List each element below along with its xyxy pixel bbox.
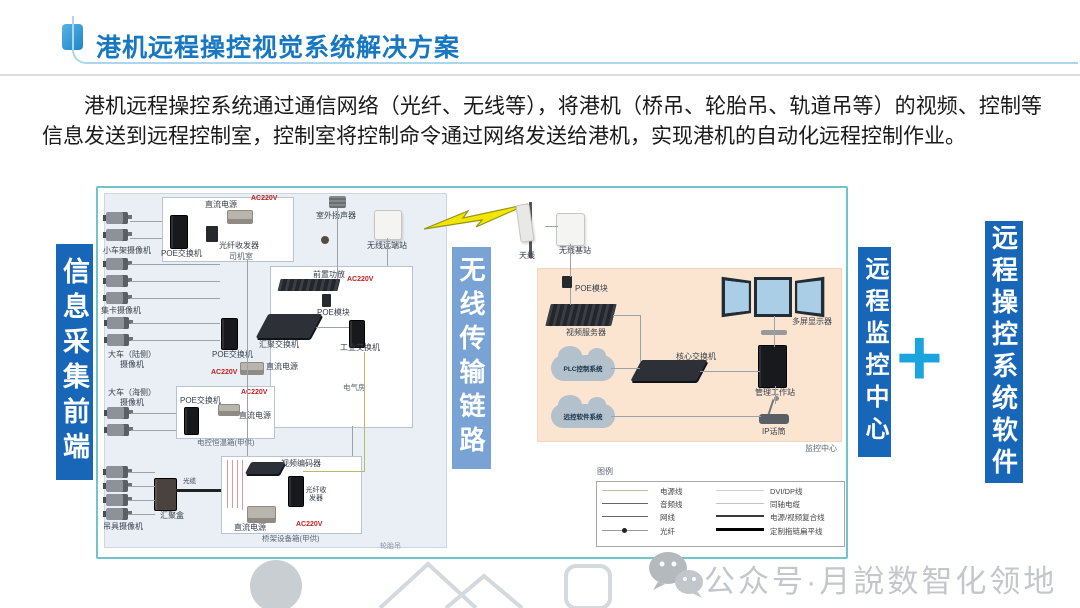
poe-switch-icon	[170, 215, 188, 249]
camera-icon	[106, 292, 128, 304]
gantry-sea-cameras-label: 大车（海侧）摄像机	[106, 388, 158, 407]
banner-monitoring-center: 远程监控中心	[858, 247, 891, 457]
legend-label-fiber: 光纤	[660, 526, 675, 537]
connection-line	[130, 238, 162, 239]
connection-line	[570, 244, 571, 277]
legend-fiber-dot	[622, 528, 627, 533]
legend-line-coax	[716, 503, 764, 504]
wechat-icon	[646, 549, 704, 599]
moon-frame-icon	[566, 566, 610, 608]
legend-label-power: 电源线	[660, 486, 683, 497]
outdoor-speaker-label: 室外扬声器	[316, 211, 356, 221]
pickup-mic-icon	[321, 236, 329, 244]
aggregation-box-label: 汇聚盒	[160, 511, 184, 521]
ac220v-label: AC220V	[211, 369, 237, 376]
mountain-icon	[380, 564, 476, 608]
aggregation-box-icon	[154, 478, 177, 511]
connection-line	[640, 315, 641, 362]
connection-line	[128, 500, 155, 501]
fiber-cable-icon	[176, 489, 221, 492]
legend-label-audio: 音频线	[660, 499, 683, 510]
base-station-label: 无线基站	[559, 246, 591, 256]
legend-line-network	[602, 516, 648, 517]
software-cloud-label: 远控软件系统	[551, 411, 615, 421]
ac220v-label: AC220V	[241, 389, 267, 396]
display-screen	[754, 277, 792, 317]
power-line	[242, 460, 243, 510]
plc-system-cloud-label: PLC控制系统	[551, 363, 615, 373]
core-switch-label: 核心交换机	[676, 352, 716, 362]
camera-icon	[107, 334, 129, 346]
poe-switch-icon	[184, 407, 199, 435]
dc-power-label: 直流电源	[234, 523, 266, 533]
connection-line	[775, 386, 776, 404]
software-cloud: 远控软件系统	[551, 404, 615, 428]
video-server-icon	[545, 304, 616, 326]
outdoor-speaker-icon	[329, 196, 346, 208]
camera-icon	[106, 480, 128, 492]
connection-line	[570, 288, 571, 305]
connection-line	[128, 514, 155, 515]
connection-line	[247, 260, 248, 456]
legend-label-dvi: DVI/DP线	[770, 486, 803, 497]
connection-line	[131, 430, 176, 431]
preamp-icon	[278, 279, 341, 291]
fiber-transceiver-icon	[206, 226, 218, 242]
camera-icon	[106, 212, 128, 224]
dc-power-icon	[218, 404, 240, 416]
connection-line	[128, 472, 155, 473]
dc-power-icon	[247, 506, 276, 523]
connection-line	[131, 323, 220, 324]
camera-icon	[106, 275, 128, 287]
connection-line	[387, 238, 388, 266]
connection-line	[700, 371, 760, 372]
camera-icon	[107, 407, 129, 419]
camera-icon	[106, 494, 128, 506]
elec-control-box-label: 电控恒温箱(甲供)	[197, 438, 255, 447]
fiber-transceiver-icon	[288, 476, 304, 507]
fiber-transceiver-label: 光纤收发器	[219, 241, 259, 251]
connection-line	[130, 281, 220, 282]
truck-cameras-label: 集卡摄像机	[101, 306, 141, 316]
poe-switch-label: POE交换机	[161, 249, 202, 259]
camera-icon	[106, 229, 128, 241]
legend-label-coax: 同轴电缆	[770, 499, 800, 510]
connection-line	[316, 327, 349, 328]
poe-module-label: POE模块	[317, 308, 350, 318]
watermark-text: 公众号·月說数智化领地	[704, 556, 1057, 601]
connection-line	[611, 368, 640, 369]
legend-line-flat-cable	[716, 528, 764, 531]
core-switch-icon	[630, 360, 707, 381]
plus-sign: +	[896, 318, 943, 398]
banner-front-end: 信息采集前端	[56, 244, 93, 480]
connection-line	[611, 416, 761, 417]
fiber-line	[303, 471, 365, 472]
connection-line	[131, 340, 220, 341]
connection-line	[613, 315, 640, 316]
workstation-icon	[758, 345, 787, 388]
connection-line	[130, 264, 220, 265]
connection-line	[130, 298, 220, 299]
dc-power-icon	[227, 210, 253, 224]
aggregation-switch-label: 汇聚交换机	[259, 340, 299, 350]
dc-power-icon	[240, 362, 264, 375]
dc-power-label: 直流电源	[205, 200, 237, 210]
video-server-label: 视频服务器	[566, 328, 606, 338]
header-divider	[0, 74, 1080, 76]
poe-module-icon	[322, 294, 331, 307]
poe-module-icon	[562, 276, 572, 288]
page-title: 港机远程操控视觉系统解决方案	[96, 28, 460, 64]
cab-room-label: 司机室	[229, 252, 253, 262]
video-encoder-label: 视频编码器	[281, 459, 321, 469]
poe-module-label: POE模块	[575, 284, 608, 294]
plc-system-cloud: PLC控制系统	[551, 355, 615, 381]
camera-icon	[106, 508, 128, 520]
multi-display-icon	[722, 274, 826, 318]
ip-mic-label: IP话筒	[762, 427, 786, 437]
legend-label-network: 网线	[660, 512, 675, 523]
power-line	[237, 460, 238, 508]
poe-switch-label: POE交换机	[180, 396, 221, 406]
legend-line-power	[602, 490, 648, 491]
ac220v-label: AC220V	[347, 276, 373, 283]
spreader-cameras-label: 吊具摄像机	[103, 522, 143, 532]
camera-icon	[107, 424, 129, 436]
antenna-label: 天线	[519, 251, 535, 261]
connection-line	[337, 208, 338, 279]
multi-display-label: 多屏显示器	[792, 317, 832, 327]
connection-line	[128, 486, 155, 487]
legend-label-composite: 电源/视频复合线	[770, 512, 825, 523]
connection-line	[774, 316, 775, 347]
connection-line	[131, 413, 176, 414]
video-encoder-icon	[245, 462, 285, 474]
industrial-switch-label: 工业交换机	[337, 343, 383, 353]
legend-label-flat-cable: 定制拖链扁平线	[770, 526, 823, 537]
electrical-room-label: 电气房	[343, 383, 366, 392]
display-screen	[722, 277, 751, 318]
gantry-land-cameras-label: 大车（陆侧）摄像机	[106, 350, 158, 369]
banner-wireless-link: 无线传输链路	[452, 247, 491, 469]
camera-icon	[106, 258, 128, 270]
connection-line	[130, 221, 162, 222]
lightning-bolt-icon	[424, 203, 528, 245]
legend-line-composite	[716, 515, 764, 517]
legend-line-dvi	[716, 490, 764, 491]
legend-line-audio	[602, 503, 648, 504]
connection-line	[352, 426, 353, 456]
ac220v-label: AC220V	[251, 195, 277, 202]
base-station-icon	[556, 213, 585, 246]
poe-switch-icon	[221, 318, 238, 350]
camera-icon	[107, 317, 129, 329]
monitoring-room-label: 监控中心	[805, 444, 837, 454]
legend-title: 图例	[597, 467, 613, 477]
area-tag-label: 轮胎吊	[380, 543, 401, 551]
fiber-transceiver-label: 光纤收发器	[304, 487, 328, 504]
camera-icon	[106, 466, 128, 478]
dc-power-label: 直流电源	[266, 362, 298, 372]
panda-icon	[250, 560, 302, 608]
slide: 港机远程操控视觉系统解决方案 港机远程操控系统通过通信网络（光纤、无线等），将港…	[0, 0, 1080, 608]
trolley-cameras-label: 小车架摄像机	[103, 246, 151, 256]
fiber-line	[364, 352, 365, 472]
wireless-remote-station-icon	[374, 210, 402, 240]
intro-paragraph: 港机远程操控系统通过通信网络（光纤、无线等），将港机（桥吊、轮胎吊、轨道吊等）的…	[42, 92, 1042, 152]
connection-line	[545, 226, 558, 227]
fiber-cable-label: 光缆	[183, 478, 196, 486]
ac220v-label: AC220V	[296, 521, 322, 528]
power-line	[227, 460, 228, 508]
watermark-logo-shapes	[230, 556, 650, 608]
display-screen	[795, 277, 824, 318]
power-line	[232, 460, 233, 508]
ip-mic-base-icon	[759, 414, 789, 424]
crane-equipment-box-label: 桥架设备箱(甲供)	[262, 534, 320, 543]
dc-power-label: 直流电源	[239, 411, 271, 421]
banner-control-software: 远程操控系统软件	[985, 221, 1023, 483]
